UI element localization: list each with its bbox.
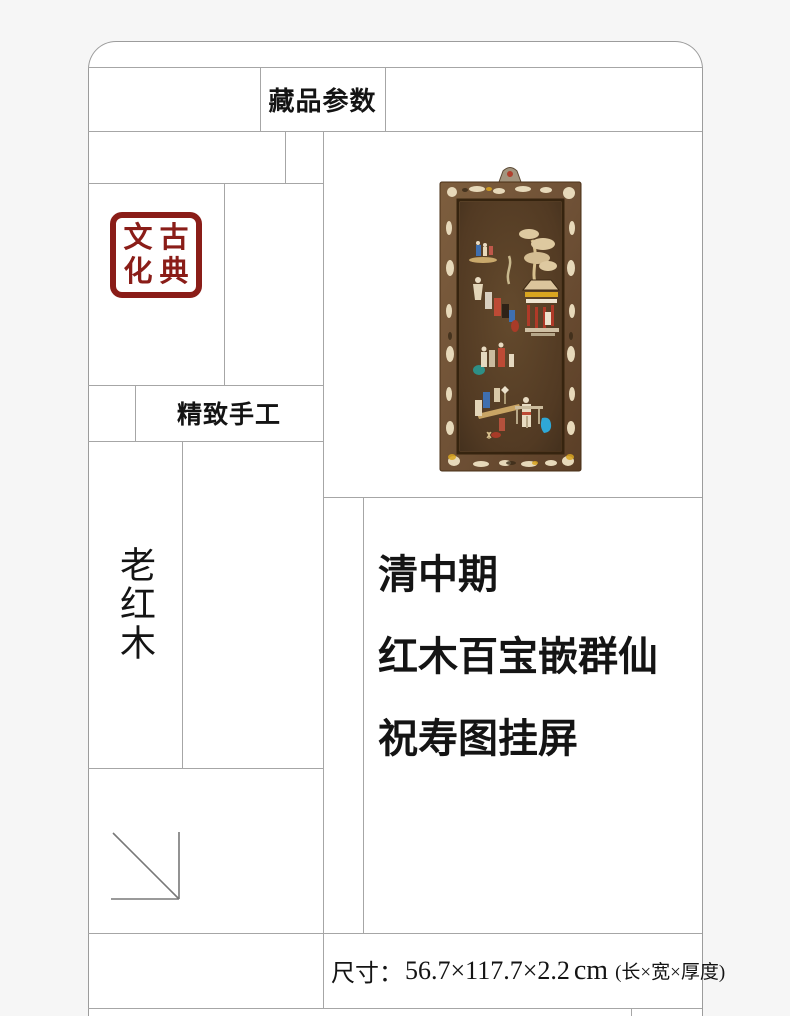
promo-page: 藏品参数 文 古 化 典 精致手工 老红木: [0, 0, 790, 1016]
material-label: 老红木: [117, 546, 153, 663]
grid-line: [363, 497, 364, 933]
collection-params-title: 藏品参数: [260, 67, 385, 131]
grid-line: [224, 183, 225, 385]
grid-line: [323, 131, 324, 1008]
grid-line: [323, 497, 702, 498]
grid-line: [631, 1008, 632, 1016]
product-title-line: 清中期: [378, 552, 698, 598]
seal-char: 化: [123, 258, 152, 287]
craft-label: 精致手工: [135, 385, 323, 441]
dimensions-note: (长×宽×厚度): [615, 957, 725, 984]
diagonal-arrow-icon: [108, 828, 186, 906]
seal-char: 文: [123, 224, 152, 253]
seal-char: 古: [159, 224, 188, 253]
grid-line: [182, 441, 183, 768]
product-title: 清中期 红木百宝嵌群仙 祝寿图挂屏: [378, 552, 698, 798]
grid-line: [385, 67, 386, 131]
grid-line: [88, 131, 702, 132]
product-title-line: 祝寿图挂屏: [378, 716, 698, 762]
product-photo-hanging-panel: [439, 166, 582, 472]
grid-line: [88, 768, 323, 769]
dimensions-value: 56.7×117.7×2.2: [405, 956, 570, 986]
brand-seal: 文 古 化 典: [110, 212, 202, 298]
dimensions-label: 尺寸：: [331, 953, 403, 988]
grid-line: [285, 131, 286, 183]
grid-line: [88, 1008, 702, 1009]
dimensions-unit: cm: [574, 955, 608, 987]
material-label-cell: 老红木: [88, 441, 182, 768]
grid-line: [88, 67, 702, 68]
product-title-line: 红木百宝嵌群仙: [378, 634, 698, 680]
seal-char: 典: [159, 258, 188, 287]
grid-line: [88, 183, 323, 184]
dimensions-text: 尺寸： 56.7×117.7×2.2 cm (长×宽×厚度): [331, 933, 702, 1008]
